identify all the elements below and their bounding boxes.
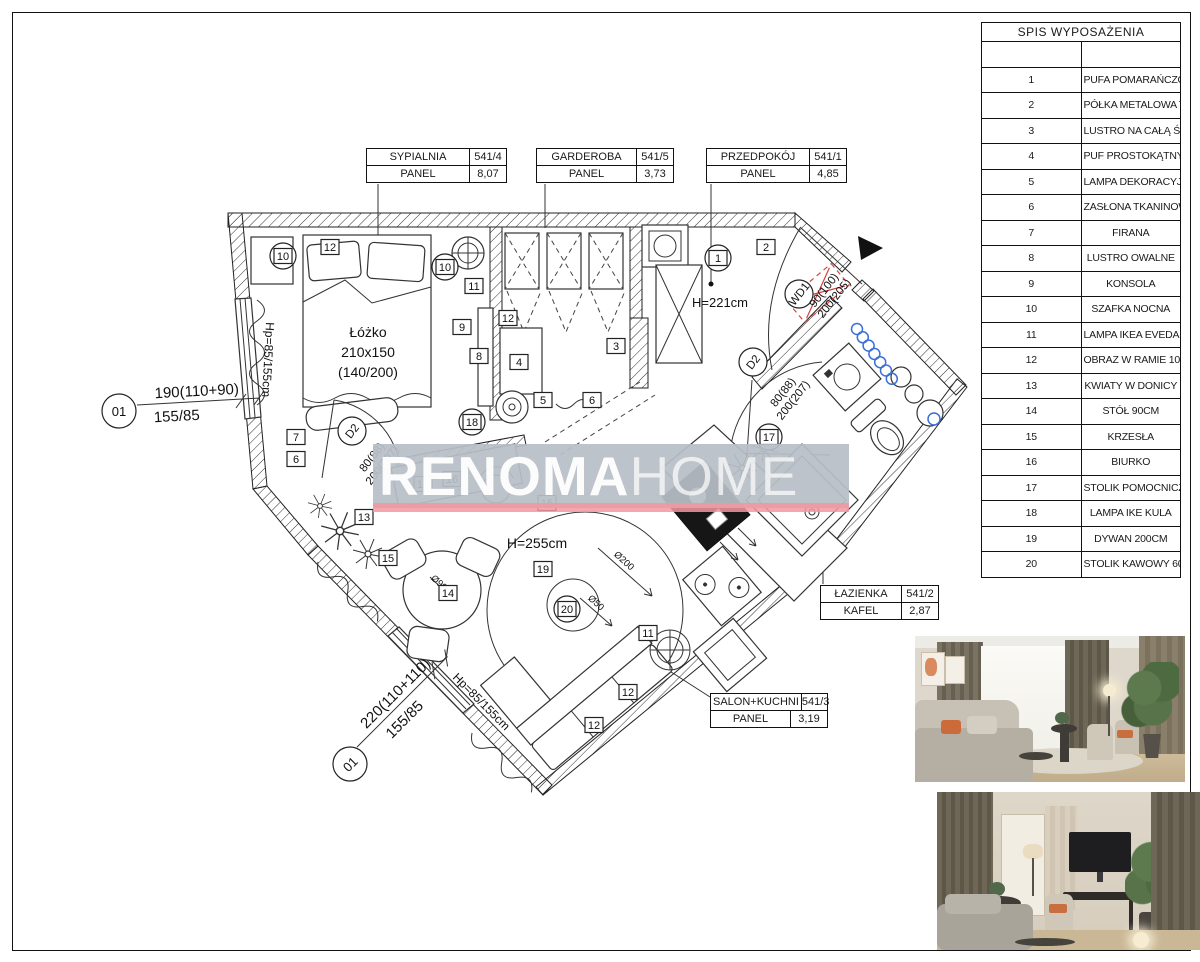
legend-row: 18LAMPA IKE KULA — [982, 501, 1181, 527]
legend-row-label: LAMPA DEKORACYJNA IKEA ..... — [1081, 169, 1181, 195]
svg-text:12: 12 — [324, 242, 336, 254]
svg-text:4: 4 — [516, 357, 522, 369]
legend-row-number: 8 — [982, 246, 1082, 272]
plan-marker-12: 12 — [499, 311, 517, 326]
legend-row: 16BIURKO — [982, 450, 1181, 476]
svg-text:Ø200: Ø200 — [611, 549, 636, 573]
watermark-underline — [373, 503, 849, 512]
svg-text:13: 13 — [358, 512, 370, 524]
plan-marker-12: 12 — [619, 685, 637, 700]
legend-row-number: 4 — [982, 144, 1082, 170]
svg-text:1: 1 — [715, 253, 721, 265]
legend-row-label: SZAFKA NOCNA — [1081, 297, 1181, 323]
plan-marker-11: 11 — [465, 279, 483, 294]
watermark: RENOMAHOME — [373, 444, 849, 508]
legend-row-number: 10 — [982, 297, 1082, 323]
legend-row-label: STOLIK POMOCNICZY — [1081, 475, 1181, 501]
dim-window-left: 01 190(110+90) 155/85 — [102, 381, 264, 428]
svg-text:190(110+90): 190(110+90) — [154, 381, 239, 402]
svg-text:10: 10 — [277, 251, 289, 263]
svg-text:10: 10 — [439, 262, 451, 274]
plan-marker-12: 12 — [321, 240, 339, 255]
legend-row-number: 18 — [982, 501, 1082, 527]
plan-marker-9: 9 — [453, 320, 471, 335]
bed — [303, 235, 431, 407]
legend-row-label: PUF PROSTOKĄTNY — [1081, 144, 1181, 170]
svg-text:5: 5 — [540, 395, 546, 407]
legend-row-number: 16 — [982, 450, 1082, 476]
equipment-list-title: SPIS WYPOSAŻENIA — [982, 23, 1181, 42]
legend-row-number: 15 — [982, 424, 1082, 450]
legend-row-label: KONSOLA — [1081, 271, 1181, 297]
legend-row: 19DYWAN 200CM — [982, 526, 1181, 552]
decor-lamp-symbol — [496, 391, 528, 423]
svg-text:01: 01 — [112, 404, 126, 419]
room-label-salon-kuchnia: SALON+KUCHNI541/3 PANEL3,19 — [710, 693, 828, 728]
room-label-przedpokoj: PRZEDPOKÓJ541/1 PANEL4,85 — [706, 148, 847, 183]
legend-row-number: 17 — [982, 475, 1082, 501]
plan-marker-20: 20 — [554, 596, 580, 622]
svg-text:210x150: 210x150 — [341, 344, 395, 360]
plan-marker-14: 14 — [439, 586, 457, 601]
legend-row-label: BIURKO — [1081, 450, 1181, 476]
legend-row-number: 19 — [982, 526, 1082, 552]
svg-text:H=255cm: H=255cm — [507, 535, 567, 551]
legend-row-label: LUSTRO NA CAŁĄ ŚCIANĘ — [1081, 118, 1181, 144]
dim-window-bottom: 01 220(110+110) 155/85 — [320, 641, 467, 788]
wardrobe-boxes — [505, 233, 625, 332]
svg-text:17: 17 — [763, 432, 775, 444]
svg-text:6: 6 — [589, 395, 595, 407]
legend-row-label: OBRAZ W RAMIE 100X70 — [1081, 348, 1181, 374]
legend-row: 17STOLIK POMOCNICZY — [982, 475, 1181, 501]
legend-row: 8LUSTRO OWALNE — [982, 246, 1181, 272]
plan-marker-10: 10 — [270, 243, 296, 269]
legend-row-label: PÓŁKA METALOWA TRÓJĄTNA — [1081, 93, 1181, 119]
plan-marker-13: 13 — [355, 510, 373, 525]
watermark-light: HOME — [629, 444, 798, 508]
plan-marker-15: 15 — [379, 551, 397, 566]
svg-text:18: 18 — [466, 417, 478, 429]
svg-text:14: 14 — [442, 588, 454, 600]
plan-marker-8: 8 — [470, 349, 488, 364]
svg-text:Łóżko: Łóżko — [349, 324, 387, 340]
legend-row-label: KWIATY W DONICY — [1081, 373, 1181, 399]
svg-text:12: 12 — [502, 313, 514, 325]
hall-closet — [642, 225, 702, 363]
legend-row: 13KWIATY W DONICY — [982, 373, 1181, 399]
room-label-garderoba: GARDEROBA541/5 PANEL3,73 — [536, 148, 674, 183]
legend-row: 9KONSOLA — [982, 271, 1181, 297]
legend-row-label: ZASŁONA TKANINOWA — [1081, 195, 1181, 221]
legend-row: 7FIRANA — [982, 220, 1181, 246]
legend-row-number: 9 — [982, 271, 1082, 297]
svg-text:9: 9 — [459, 322, 465, 334]
legend-row: 4PUF PROSTOKĄTNY — [982, 144, 1181, 170]
legend-row-number: 13 — [982, 373, 1082, 399]
plan-marker-10: 10 — [432, 254, 458, 280]
plan-marker-6: 6 — [583, 393, 601, 408]
north-arrow — [858, 236, 883, 260]
svg-text:20: 20 — [561, 604, 573, 616]
legend-row: 6ZASŁONA TKANINOWA — [982, 195, 1181, 221]
legend-row-number: 2 — [982, 93, 1082, 119]
plan-marker-11: 11 — [639, 626, 657, 641]
legend-row: 10SZAFKA NOCNA — [982, 297, 1181, 323]
legend-row: 14STÓŁ 90CM — [982, 399, 1181, 425]
svg-text:H=221cm: H=221cm — [692, 295, 748, 310]
legend-row-label: PUFA POMARAŃCZOWA 40 CM — [1081, 67, 1181, 93]
legend-row: 11LAMPA IKEA EVEDAL — [982, 322, 1181, 348]
legend-row-number: 5 — [982, 169, 1082, 195]
drawing-sheet: WD1 90(100) 200(205) D2 80(88) 200(207) … — [0, 0, 1200, 962]
legend-row-number: 1 — [982, 67, 1082, 93]
photo-desk-tv-room — [937, 792, 1200, 950]
legend-row-number: 12 — [982, 348, 1082, 374]
plan-marker-6: 6 — [287, 452, 305, 467]
legend-row-number: 11 — [982, 322, 1082, 348]
svg-text:(140/200): (140/200) — [338, 364, 398, 380]
legend-row-label: LAMPA IKEA EVEDAL — [1081, 322, 1181, 348]
legend-row-number: 20 — [982, 552, 1082, 578]
plan-marker-5: 5 — [534, 393, 552, 408]
legend-row-number: 3 — [982, 118, 1082, 144]
svg-text:6: 6 — [293, 454, 299, 466]
legend-row: 1PUFA POMARAŃCZOWA 40 CM — [982, 67, 1181, 93]
legend-row: 3LUSTRO NA CAŁĄ ŚCIANĘ — [982, 118, 1181, 144]
plan-marker-7: 7 — [287, 430, 305, 445]
svg-text:11: 11 — [468, 281, 479, 293]
plan-marker-1: 1 — [705, 245, 731, 271]
plan-marker-2: 2 — [757, 240, 775, 255]
legend-row-label: STOLIK KAWOWY 60 — [1081, 552, 1181, 578]
legend-row: 2PÓŁKA METALOWA TRÓJĄTNA — [982, 93, 1181, 119]
svg-text:12: 12 — [622, 687, 634, 699]
legend-row-label: FIRANA — [1081, 220, 1181, 246]
room-label-lazienka: ŁAZIENKA541/2 KAFEL2,87 — [820, 585, 939, 620]
legend-row-label: DYWAN 200CM — [1081, 526, 1181, 552]
legend-row-label: LUSTRO OWALNE — [1081, 246, 1181, 272]
armchair — [693, 618, 766, 691]
equipment-list: SPIS WYPOSAŻENIA 1PUFA POMARAŃCZOWA 40 C… — [981, 22, 1181, 578]
svg-text:15: 15 — [382, 553, 394, 565]
plan-marker-12: 12 — [585, 718, 603, 733]
svg-text:3: 3 — [613, 341, 619, 353]
plan-marker-4: 4 — [510, 355, 528, 370]
watermark-bold: RENOMA — [379, 444, 629, 508]
legend-row-number: 14 — [982, 399, 1082, 425]
plan-marker-3: 3 — [607, 339, 625, 354]
legend-row-label: STÓŁ 90CM — [1081, 399, 1181, 425]
plan-marker-19: 19 — [534, 562, 552, 577]
svg-text:11: 11 — [642, 628, 653, 640]
legend-row-label: KRZESŁA — [1081, 424, 1181, 450]
photo-living-room — [915, 636, 1185, 782]
plan-marker-18: 18 — [459, 409, 485, 435]
legend-row: 15KRZESŁA — [982, 424, 1181, 450]
room-label-sypialnia: SYPIALNIA541/4 PANEL8,07 — [366, 148, 507, 183]
legend-row: 12OBRAZ W RAMIE 100X70 — [982, 348, 1181, 374]
svg-text:Ø50: Ø50 — [585, 593, 606, 613]
legend-row: 20STOLIK KAWOWY 60 — [982, 552, 1181, 578]
svg-text:19: 19 — [537, 564, 549, 576]
svg-text:8: 8 — [476, 351, 482, 363]
svg-text:12: 12 — [588, 720, 600, 732]
legend-row: 5LAMPA DEKORACYJNA IKEA ..... — [982, 169, 1181, 195]
legend-row-label: LAMPA IKE KULA — [1081, 501, 1181, 527]
legend-row-number: 6 — [982, 195, 1082, 221]
svg-text:7: 7 — [293, 432, 299, 444]
svg-text:2: 2 — [763, 242, 769, 254]
svg-text:Hp=85/155cm: Hp=85/155cm — [259, 322, 277, 398]
svg-text:155/85: 155/85 — [153, 407, 200, 426]
legend-row-number: 7 — [982, 220, 1082, 246]
